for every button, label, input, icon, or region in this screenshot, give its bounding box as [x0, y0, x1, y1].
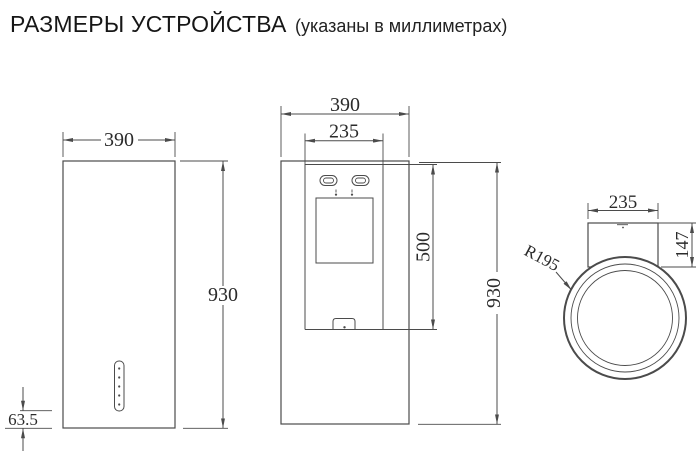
side-width-label: 390 — [104, 129, 134, 151]
front-height-label: 930 — [483, 278, 505, 308]
front-width-label: 390 — [330, 94, 360, 116]
top-depth-label: 147 — [672, 232, 692, 259]
side-height-label: 930 — [208, 284, 238, 306]
side-control-offset-dimension: 63.5 — [5, 387, 52, 451]
top-radius-dimension: R195 — [521, 241, 571, 290]
led-dot — [118, 367, 120, 369]
led-dot — [118, 394, 120, 396]
front-glass-height-label: 500 — [413, 232, 435, 262]
led-dot — [118, 376, 120, 378]
top-depth-dimension: 147 — [658, 223, 696, 267]
top-width-dimension: 235 — [588, 192, 658, 219]
led-dot — [118, 385, 120, 387]
led-dot — [118, 403, 120, 405]
top-view: 235 147 R195 — [521, 192, 696, 379]
front-height-label-group: 930 — [483, 272, 505, 314]
connector-dot — [343, 326, 345, 328]
screw-dot — [351, 194, 353, 196]
top-width-label: 235 — [609, 192, 638, 213]
front-body-outline — [281, 161, 409, 424]
side-offset-label: 63.5 — [8, 410, 38, 429]
front-glass-width-label: 235 — [329, 121, 359, 143]
side-body-outline — [63, 161, 175, 428]
dimension-drawing: 390 930 63.5 — [0, 0, 700, 469]
side-width-dimension: 390 — [63, 129, 175, 157]
front-glass-width-dimension: 235 — [305, 121, 383, 165]
plate-center-dot — [622, 227, 624, 229]
top-body-outer-circle — [564, 257, 686, 379]
front-height-dimension: 930 — [418, 163, 505, 425]
screw-dot — [335, 194, 337, 196]
front-view: 390 235 500 930 — [281, 94, 505, 424]
side-height-dimension: 930 — [180, 161, 240, 428]
radius-leader-line — [556, 272, 572, 290]
top-radius-label: R195 — [521, 241, 562, 275]
side-view: 390 930 63.5 — [5, 129, 240, 451]
